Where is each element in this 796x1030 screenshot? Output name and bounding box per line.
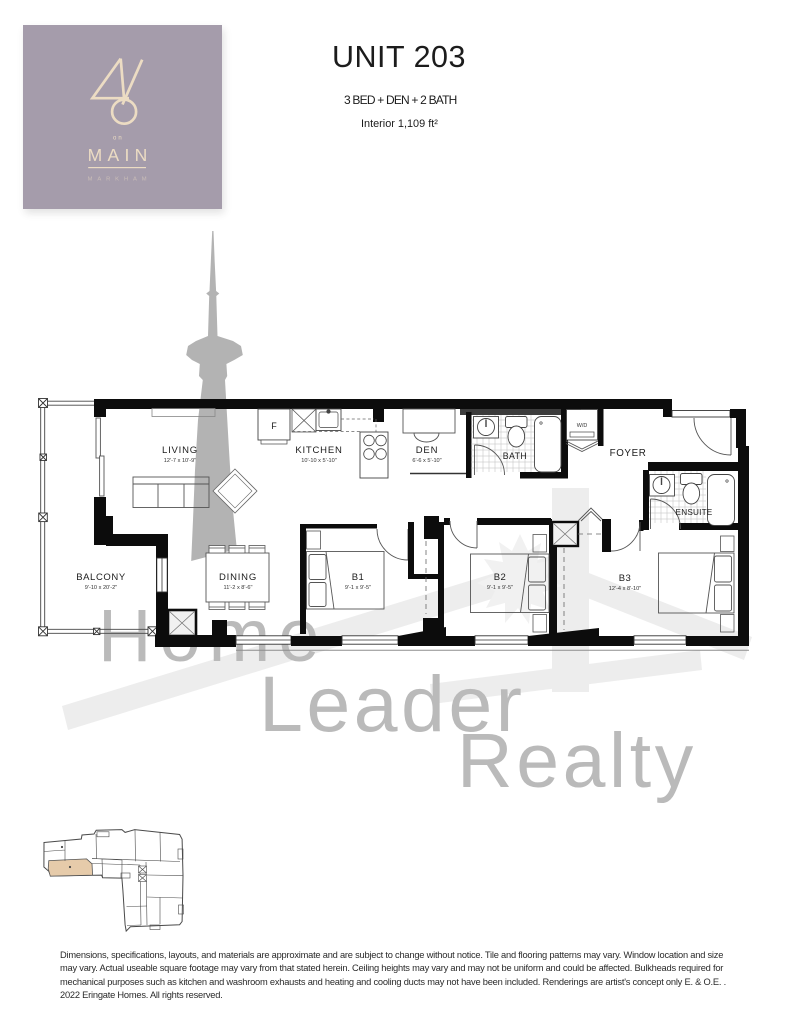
svg-text:B3: B3 — [619, 573, 632, 584]
svg-text:BATH: BATH — [503, 451, 527, 461]
svg-text:KITCHEN: KITCHEN — [295, 445, 342, 456]
svg-text:F: F — [271, 421, 277, 431]
svg-text:9'-1 x 9'-5": 9'-1 x 9'-5" — [345, 585, 371, 591]
svg-text:FOYER: FOYER — [610, 448, 647, 459]
svg-text:DINING: DINING — [219, 572, 257, 583]
svg-text:DEN: DEN — [416, 445, 438, 456]
svg-text:B1: B1 — [352, 572, 365, 583]
svg-text:ENSUITE: ENSUITE — [676, 508, 713, 517]
svg-text:6'-6 x 5'-10": 6'-6 x 5'-10" — [412, 458, 441, 464]
svg-text:W/D: W/D — [577, 423, 588, 429]
svg-text:BALCONY: BALCONY — [76, 572, 126, 583]
svg-text:Realty: Realty — [457, 718, 697, 804]
svg-text:LIVING: LIVING — [162, 445, 198, 456]
svg-text:12'-4 x 8'-10": 12'-4 x 8'-10" — [609, 586, 641, 592]
svg-text:B2: B2 — [494, 572, 507, 583]
svg-text:12'-7 x 10'-9": 12'-7 x 10'-9" — [164, 458, 196, 464]
svg-text:9'-10 x 20'-2": 9'-10 x 20'-2" — [85, 585, 117, 591]
svg-text:9'-1 x 9'-5": 9'-1 x 9'-5" — [487, 585, 513, 591]
svg-text:11'-2 x 8'-6": 11'-2 x 8'-6" — [224, 585, 253, 591]
svg-text:10'-10 x 5'-10": 10'-10 x 5'-10" — [301, 458, 337, 464]
